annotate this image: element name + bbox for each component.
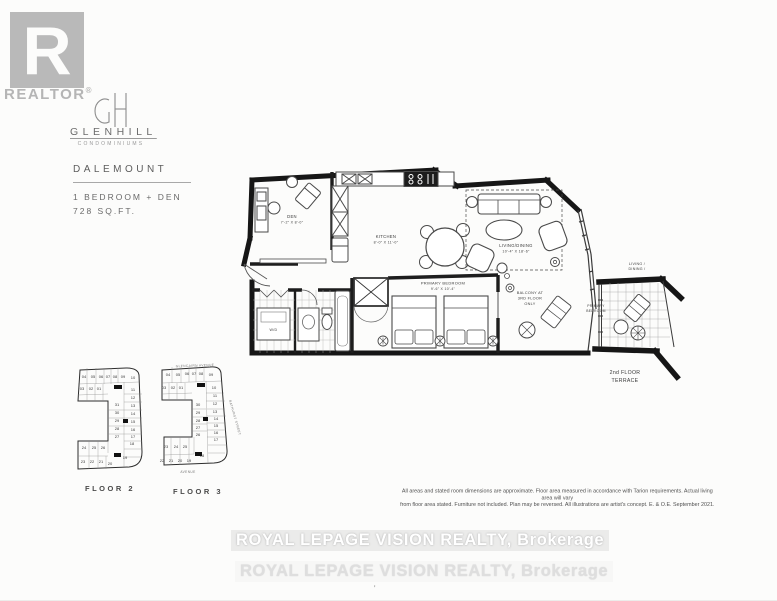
keyplan-unit-number: 29 (115, 418, 120, 423)
terrace-context-dining: DINING / (629, 267, 646, 271)
terrace-context-living: LIVING / (629, 262, 645, 266)
lounge-chair (540, 295, 571, 328)
keyplan-unit-number: 22 (160, 458, 165, 463)
keyplan-unit-number: 02 (89, 386, 94, 391)
hall-closet (354, 278, 388, 322)
keyplan-unit-number: 18 (130, 441, 135, 446)
keyplan-unit-number: 27 (115, 434, 120, 439)
keyplan-highlight-marker (197, 383, 205, 387)
disclaimer-line-1: All areas and stated room dimensions are… (398, 488, 717, 502)
model-name: DALEMOUNT (73, 164, 167, 175)
building-name: GLENHILL (70, 126, 152, 138)
pillow (415, 330, 433, 344)
keyplan-unit-number: 11 (131, 387, 136, 392)
keyplan-unit-number: 13 (213, 409, 218, 414)
toilet-tank (322, 308, 332, 314)
keyplan-unit-number: 27 (196, 425, 201, 430)
keyplan-highlight-marker (114, 453, 121, 457)
sink-icon (303, 315, 315, 329)
keyplan-unit-number: 26 (101, 445, 106, 450)
realtor-mark: R (22, 13, 71, 88)
keyplan-unit-number: 15 (131, 419, 136, 424)
keyplan-highlight-marker (123, 419, 128, 423)
keyplan-unit-number: 14 (131, 411, 136, 416)
toilet-icon (322, 315, 332, 330)
terrace-context-primary: PRIMARY (587, 304, 605, 308)
keyplan-unit-number: 21 (99, 459, 104, 464)
keyplan-unit-number: 30 (115, 410, 120, 415)
keyplan-unit-number: 20 (178, 458, 183, 463)
balcony-label-1: BALCONY AT (517, 291, 544, 295)
living-furniture (464, 190, 569, 279)
keyplan-unit-number: 05 (91, 374, 96, 379)
coffee-table (486, 220, 522, 240)
keyplan-unit-number: 03 (162, 385, 167, 390)
realtor-logo: R (10, 12, 84, 93)
keyplan-unit-number: 19 (187, 458, 192, 463)
keyplan-units-floor3: 0405060708090302011011121314151617302928… (160, 371, 219, 463)
keyplan-unit-number: 28 (115, 426, 120, 431)
bath-door-icon (302, 290, 317, 305)
street-label-bathurst: BATHURST STREET (228, 400, 242, 436)
entry-door-icon (244, 264, 270, 286)
living-label: LIVING/DINING (499, 243, 532, 248)
keyplan-unit-number: 21 (169, 458, 174, 463)
keyplan-floor3-title: FLOOR 3 (152, 487, 244, 496)
pillow (447, 330, 465, 344)
unit-area: 728 SQ.FT. (73, 206, 136, 216)
patio-table (614, 320, 628, 334)
kitchen-dims: 8'-0" X 11'-0" (374, 241, 399, 245)
fridge-icon (332, 238, 348, 262)
brokerage-watermark-1: ROYAL LEPAGE VISION REALTY, Brokerage (231, 530, 609, 551)
keyplan-unit-number: 06 (99, 374, 104, 379)
washer-dryer-icon (257, 308, 290, 340)
keyplan-unit-number: 01 (97, 386, 102, 391)
keyplan-unit-number: 23 (81, 459, 86, 464)
street-label-avenue: AVENUE (180, 470, 195, 474)
keyplan-highlight-marker (114, 385, 122, 389)
closet-doors-icon (354, 306, 388, 322)
gh-monogram-icon (95, 93, 126, 127)
keyplan-unit-number: 11 (213, 393, 218, 398)
keyplan-unit-number: 07 (106, 374, 111, 379)
keyplan-unit-number: 19 (123, 455, 128, 460)
keyplan-unit-number: 29 (196, 410, 201, 415)
bedroom-label: PRIMARY BEDROOM (421, 281, 465, 286)
keyplan-unit-number: 25 (183, 444, 188, 449)
keyplan-unit-number: 04 (166, 372, 171, 377)
keyplan-unit-number: 26 (196, 432, 201, 437)
pillow (395, 330, 413, 344)
terrace-furniture (614, 294, 651, 340)
keyplan-unit-number: 16 (214, 430, 219, 435)
scan-artifact-mark: ʼ (374, 586, 376, 593)
laundry-label: W/D (270, 328, 278, 332)
unit-layout: 1 BEDROOM + DEN (73, 192, 182, 202)
keyplan-unit-number: 24 (174, 444, 179, 449)
keyplan-unit-number: 23 (164, 444, 169, 449)
keyplan-unit-number: 28 (196, 418, 201, 423)
keyplan-unit-number: 10 (131, 375, 136, 380)
keyplan-unit-number: 05 (176, 372, 181, 377)
keyplan-unit-number: 01 (179, 385, 184, 390)
floorplan-sheet: R REALTOR® GLENHILL CONDOMINIUMS DALEMOU… (0, 0, 777, 601)
terrace-detail: LIVING / DINING / PRIMARY BEDROOM 2nd FL… (585, 250, 690, 400)
keyplan-unit-number: 14 (214, 416, 219, 421)
terrace-title-1: 2nd FLOOR (610, 370, 641, 376)
keyplan-floor3: GLENCAIRN AVENUE BATHURST STREET AVENUE … (150, 363, 244, 483)
keyplan-unit-number: 15 (214, 423, 219, 428)
sofa (478, 194, 540, 214)
realtor-r-icon: R (10, 12, 84, 88)
armchair (464, 242, 496, 274)
terrace-title-2: TERRACE (612, 378, 639, 384)
pillow (467, 330, 485, 344)
bedroom-furniture (378, 296, 498, 348)
keyplan-unit-number: 17 (214, 437, 219, 442)
keyplan-unit-number: 02 (171, 385, 176, 390)
divider-line (73, 182, 191, 183)
realtor-wordmark: REALTOR® (4, 86, 93, 103)
keyplan-unit-number: 30 (196, 402, 201, 407)
keyplan-unit-number: 06 (185, 371, 190, 376)
disclaimer: All areas and stated room dimensions are… (398, 488, 728, 518)
armchair (537, 220, 568, 253)
balcony-label-3: ONLY (524, 302, 535, 306)
keyplan-highlight-marker (195, 452, 202, 456)
keyplan-unit-number: 09 (209, 372, 214, 377)
keyplan-unit-number: 08 (199, 371, 204, 376)
keyplan-floor2-title: FLOOR 2 (70, 484, 150, 493)
laundry-closet (253, 290, 295, 353)
keyplan-unit-number: 13 (131, 403, 136, 408)
bedroom-dims: 9'-6" X 10'-4" (431, 287, 456, 291)
disclaimer-line-2: from floor area stated. Furniture not in… (398, 502, 717, 509)
keyplan-unit-number: 20 (108, 461, 113, 466)
dining-table (420, 224, 470, 269)
keyplan-unit-number: 10 (212, 385, 217, 390)
keyplan-unit-number: 07 (192, 371, 197, 376)
keyplan-unit-number: 25 (92, 445, 97, 450)
building-tagline: CONDOMINIUMS (70, 141, 152, 147)
den-dims: 7'-2" X 8'-0" (281, 221, 304, 225)
keyplan-unit-number: 09 (121, 374, 126, 379)
keyplan-unit-number: 03 (80, 386, 85, 391)
kitchen-label: KITCHEN (376, 234, 396, 239)
keyplan-highlight-marker (203, 417, 208, 421)
brokerage-watermark-2: ROYAL LEPAGE VISION REALTY, Brokerage (235, 561, 613, 582)
lounge-chair (623, 294, 651, 323)
den-label: DEN (287, 214, 297, 219)
terrace-context-bedroom: BEDROOM (586, 309, 606, 313)
keyplan-unit-number: 17 (131, 434, 136, 439)
keyplan-floor2: 0405060708091003020111121314151617183130… (70, 366, 150, 480)
keyplan-unit-number: 12 (131, 395, 136, 400)
keyplan-unit-number: 12 (213, 401, 218, 406)
living-dims: 10'-4" X 18'-6" (502, 250, 530, 254)
main-floorplan: DEN 7'-2" X 8'-0" KITCHEN 8'-0" X 11'-0" (240, 150, 600, 362)
keyplan-unit-number: 08 (113, 374, 118, 379)
keyplan-unit-number: 04 (82, 374, 87, 379)
balcony-label-2: 3RD FLOOR (518, 297, 542, 301)
bathroom (297, 290, 350, 353)
keyplan-unit-number: 22 (90, 459, 95, 464)
keyplan-unit-number: 31 (115, 402, 120, 407)
keyplan-unit-number: 16 (131, 427, 136, 432)
keyplan-unit-number: 24 (82, 445, 87, 450)
